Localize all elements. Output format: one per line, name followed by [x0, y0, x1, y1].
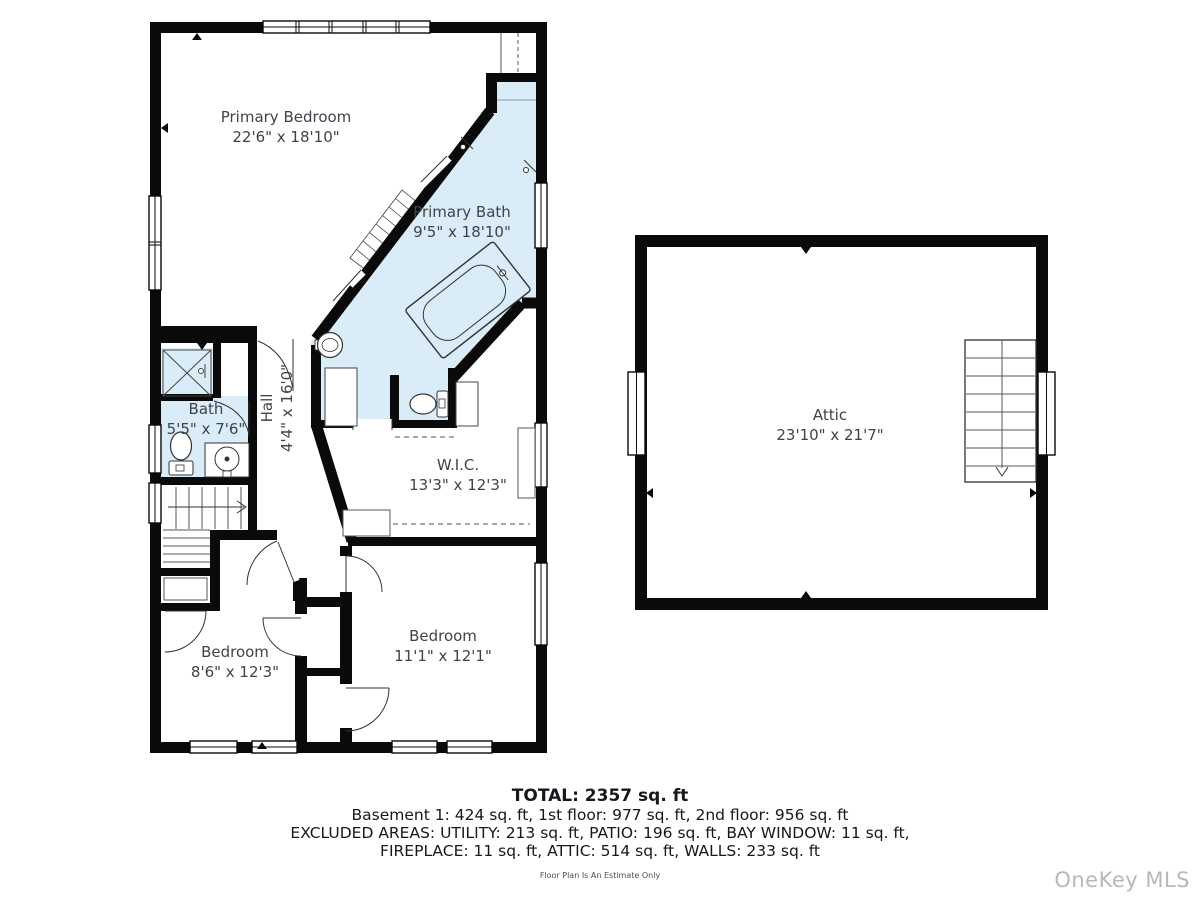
excluded-areas-2: FIREPLACE: 11 sq. ft, ATTIC: 514 sq. ft,… — [0, 842, 1200, 860]
disclaimer-text: Floor Plan Is An Estimate Only — [0, 871, 1200, 880]
room-label-hall: Hall 4'4" x 16'0" — [257, 364, 297, 452]
floor-areas: Basement 1: 424 sq. ft, 1st floor: 977 s… — [0, 806, 1200, 824]
onekey-mls-watermark: OneKey MLS — [1054, 868, 1190, 892]
room-name: W.I.C. — [409, 455, 507, 475]
room-label-primary-bedroom: Primary Bedroom 22'6" x 18'10" — [221, 107, 352, 147]
staircase-symbol — [163, 487, 241, 562]
bath-counter — [325, 368, 357, 426]
room-dims: 22'6" x 18'10" — [221, 127, 352, 147]
room-label-attic: Attic 23'10" x 21'7" — [776, 405, 883, 445]
area-summary: TOTAL: 2357 sq. ft Basement 1: 424 sq. f… — [0, 786, 1200, 860]
total-area: TOTAL: 2357 sq. ft — [0, 786, 1200, 806]
room-dims: 9'5" x 18'10" — [413, 222, 511, 242]
room-name: Primary Bedroom — [221, 107, 352, 127]
room-name: Bath — [167, 399, 246, 419]
room-name: Attic — [776, 405, 883, 425]
room-dims: 5'5" x 7'6" — [167, 419, 246, 439]
room-label-primary-bath: Primary Bath 9'5" x 18'10" — [413, 202, 511, 242]
room-name: Bedroom — [394, 626, 492, 646]
excluded-areas-1: EXCLUDED AREAS: UTILITY: 213 sq. ft, PAT… — [0, 824, 1200, 842]
bath-vanity-symbol — [205, 443, 249, 477]
room-name: Bedroom — [191, 642, 279, 662]
room-label-bedroom-left: Bedroom 8'6" x 12'3" — [191, 642, 279, 682]
room-name: Hall — [257, 364, 277, 452]
room-label-bedroom-right: Bedroom 11'1" x 12'1" — [394, 626, 492, 666]
room-dims: 8'6" x 12'3" — [191, 662, 279, 682]
room-dims: 11'1" x 12'1" — [394, 646, 492, 666]
floorplan-page: Primary Bedroom 22'6" x 18'10" Primary B… — [0, 0, 1200, 900]
room-label-bath: Bath 5'5" x 7'6" — [167, 399, 246, 439]
attic-staircase-symbol — [965, 340, 1036, 482]
room-dims: 23'10" x 21'7" — [776, 425, 883, 445]
room-label-wic: W.I.C. 13'3" x 12'3" — [409, 455, 507, 495]
under-stair-closet — [164, 578, 207, 600]
wic-counter — [456, 382, 478, 426]
stair-direction-arrow — [168, 501, 246, 513]
room-dims: 4'4" x 16'0" — [277, 364, 297, 452]
room-dims: 13'3" x 12'3" — [409, 475, 507, 495]
room-name: Primary Bath — [413, 202, 511, 222]
floor-plan-drawing — [0, 0, 1200, 900]
